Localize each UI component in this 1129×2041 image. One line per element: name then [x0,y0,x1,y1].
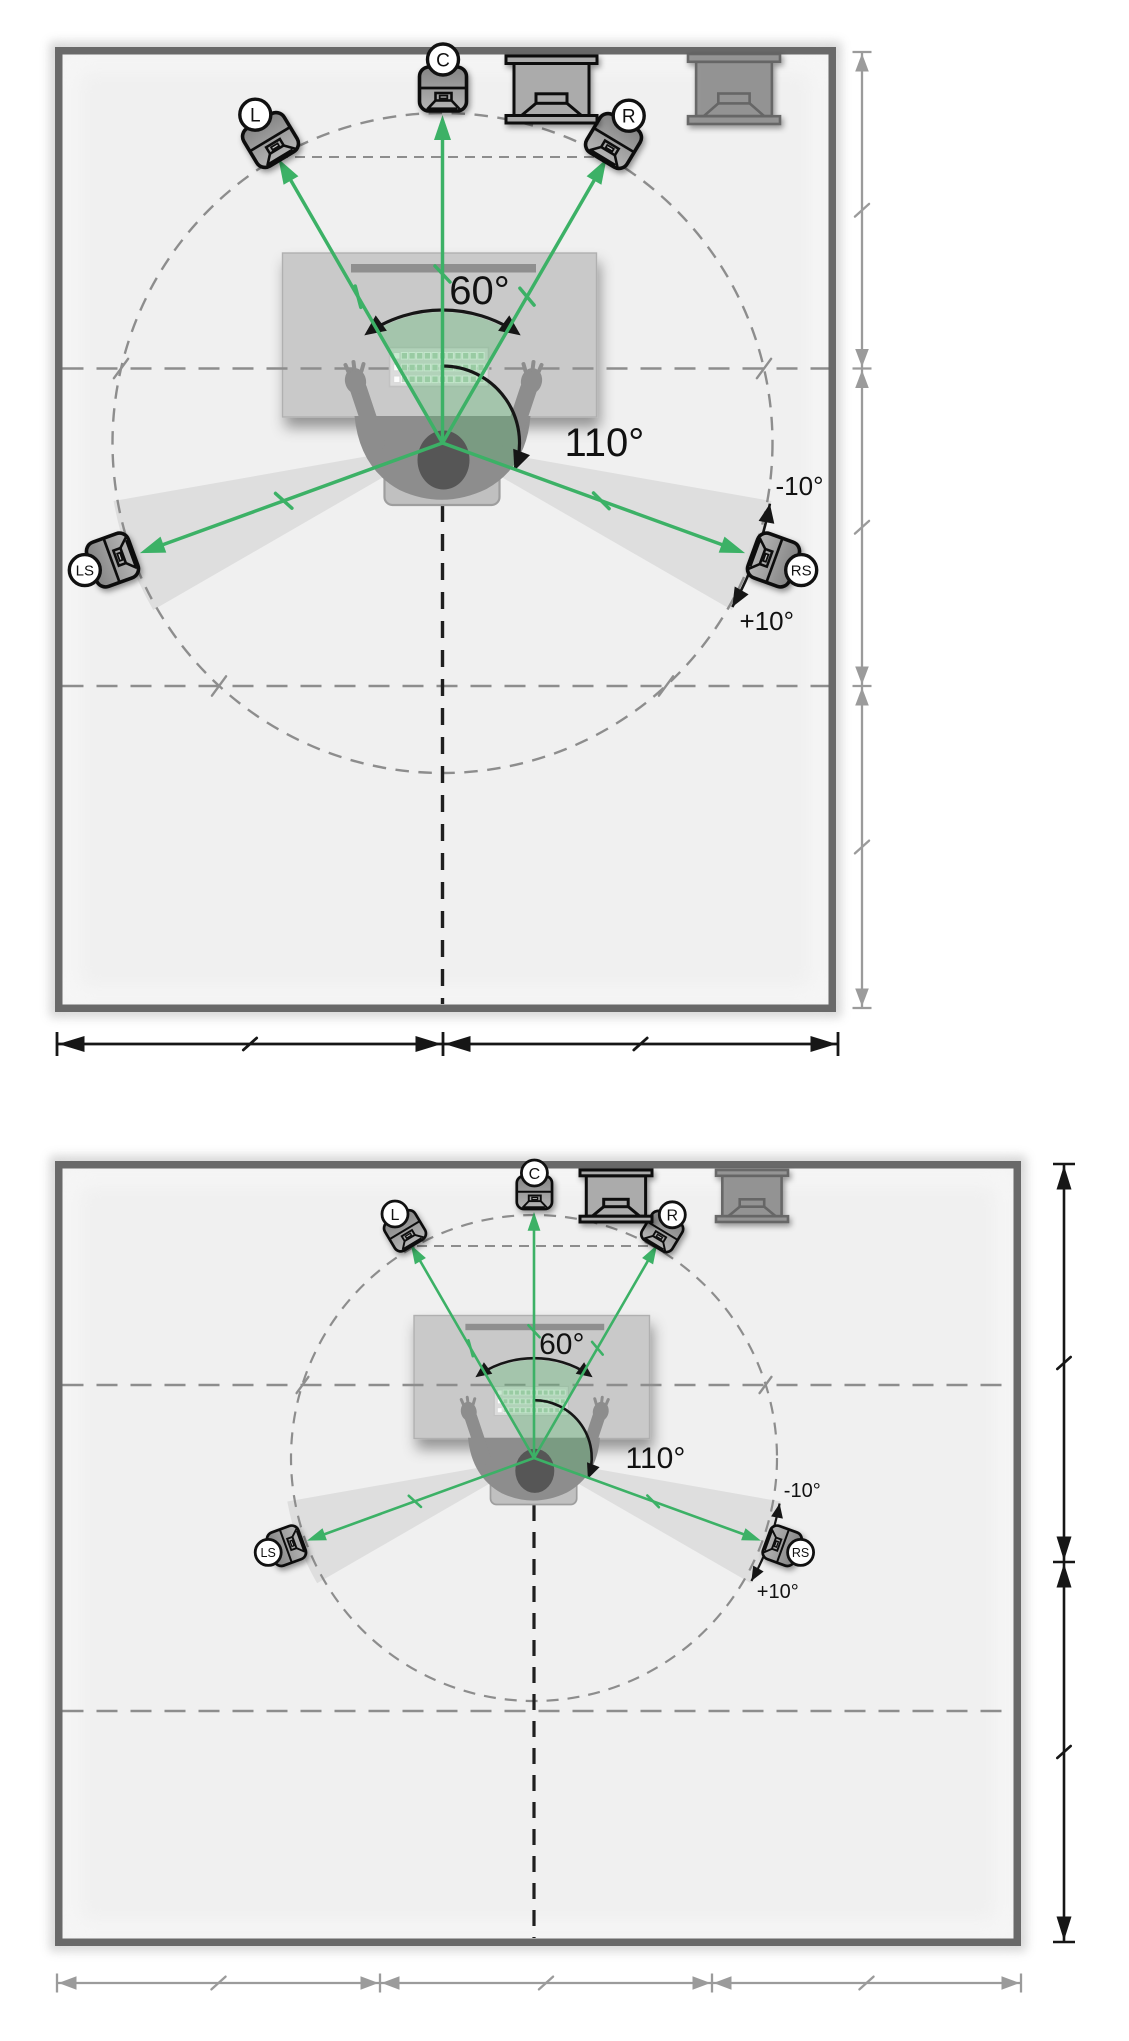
svg-text:60°: 60° [539,1328,584,1361]
svg-text:LS: LS [76,563,94,580]
svg-text:R: R [667,1208,679,1225]
svg-text:60°: 60° [449,269,510,313]
svg-text:+10°: +10° [740,606,795,636]
svg-text:-10°: -10° [776,471,824,501]
svg-text:110°: 110° [626,1442,686,1475]
svg-text:C: C [436,50,450,71]
svg-text:+10°: +10° [757,1581,799,1603]
svg-text:-10°: -10° [784,1480,821,1502]
svg-text:LS: LS [261,1546,276,1560]
svg-text:L: L [391,1207,400,1224]
svg-text:RS: RS [791,563,812,580]
svg-text:110°: 110° [565,421,645,465]
svg-text:L: L [250,106,261,127]
svg-text:RS: RS [792,1546,809,1560]
svg-text:C: C [529,1166,541,1183]
svg-text:R: R [622,107,636,128]
